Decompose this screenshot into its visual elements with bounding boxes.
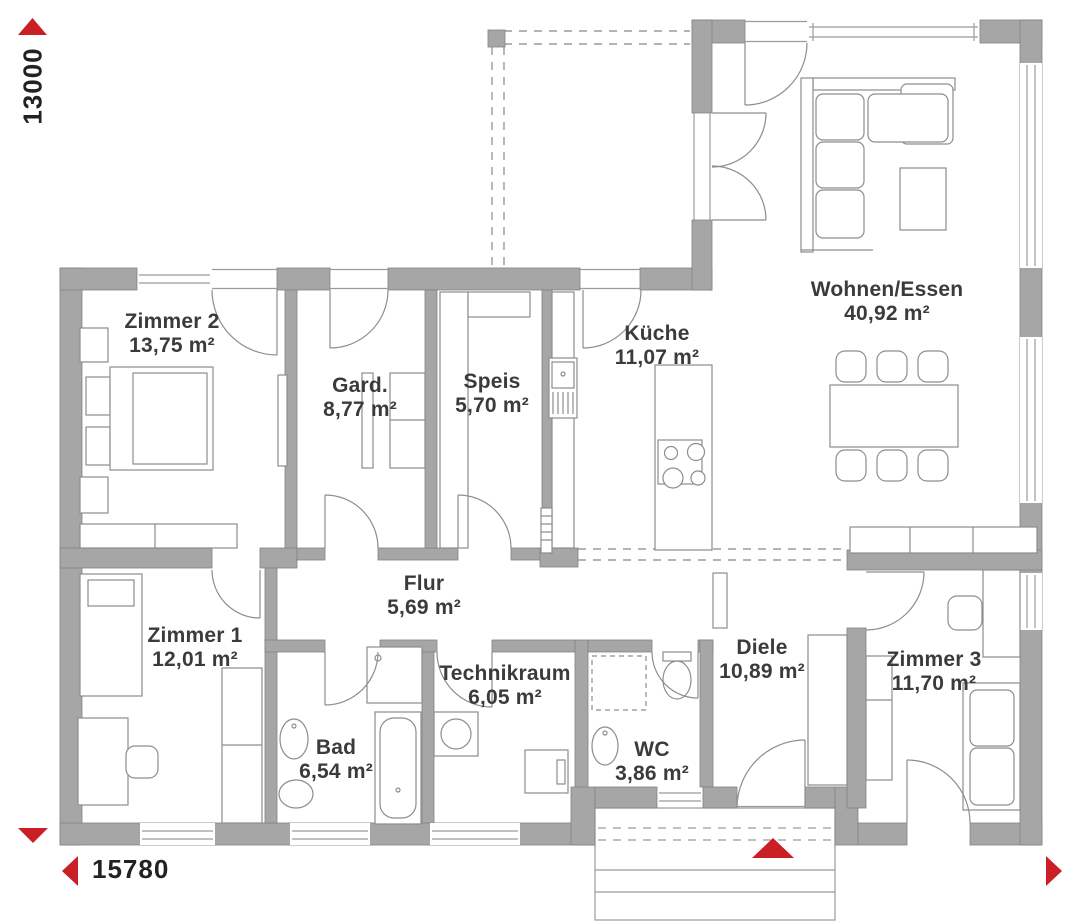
shower xyxy=(367,647,422,703)
door-zimmer1 xyxy=(212,570,260,618)
toilet xyxy=(279,780,313,808)
zimmer3-furniture xyxy=(866,570,1020,810)
sideboard xyxy=(850,527,1037,553)
open-ceiling-edge xyxy=(578,549,845,560)
door-technikraum xyxy=(437,652,492,707)
dimension-right-arrow-icon xyxy=(1046,856,1062,886)
wohnen-furniture xyxy=(801,78,1037,553)
door-zimmer3 xyxy=(866,572,924,630)
french-doors-wohnen xyxy=(712,113,766,220)
coffee-table xyxy=(900,168,946,230)
diele-furniture xyxy=(713,573,847,785)
door-kueche-terrace xyxy=(583,290,641,348)
wc-furniture xyxy=(592,652,691,765)
desk xyxy=(983,570,1020,657)
door-gard-terrace xyxy=(330,290,388,348)
zimmer2-furniture xyxy=(80,328,287,548)
wardrobe xyxy=(866,656,892,780)
door-zimmer2-terrace xyxy=(212,290,277,355)
shower xyxy=(592,656,646,710)
kueche-furniture xyxy=(541,292,712,553)
floorplan-drawing xyxy=(0,0,1080,924)
terrace-outline xyxy=(492,31,690,268)
dining-table xyxy=(830,385,958,447)
entrance-porch xyxy=(595,808,835,920)
furniture xyxy=(78,78,1037,824)
desk xyxy=(78,718,128,805)
dimension-width-label: 15780 xyxy=(92,854,169,885)
chair xyxy=(948,596,982,630)
door-gard xyxy=(325,495,378,548)
gard-furniture xyxy=(362,373,425,468)
technikraum-furniture xyxy=(434,712,568,793)
dimension-up-arrow-icon xyxy=(18,18,47,35)
speis-furniture xyxy=(440,292,530,548)
door-wohnen-corner xyxy=(745,43,807,105)
wardrobe xyxy=(808,635,847,785)
dimension-down-arrow-icon xyxy=(18,828,48,843)
bad-furniture xyxy=(279,647,422,824)
front-door xyxy=(737,740,805,808)
dimension-height-label: 13000 xyxy=(18,47,49,124)
dimension-left-arrow-icon xyxy=(62,856,78,886)
chair xyxy=(126,746,158,778)
floorplan-page: 13000 15780 Zimmer 2 13,75 m² Gard. 8,77… xyxy=(0,0,1080,924)
door-zimmer3-garden xyxy=(907,760,970,823)
